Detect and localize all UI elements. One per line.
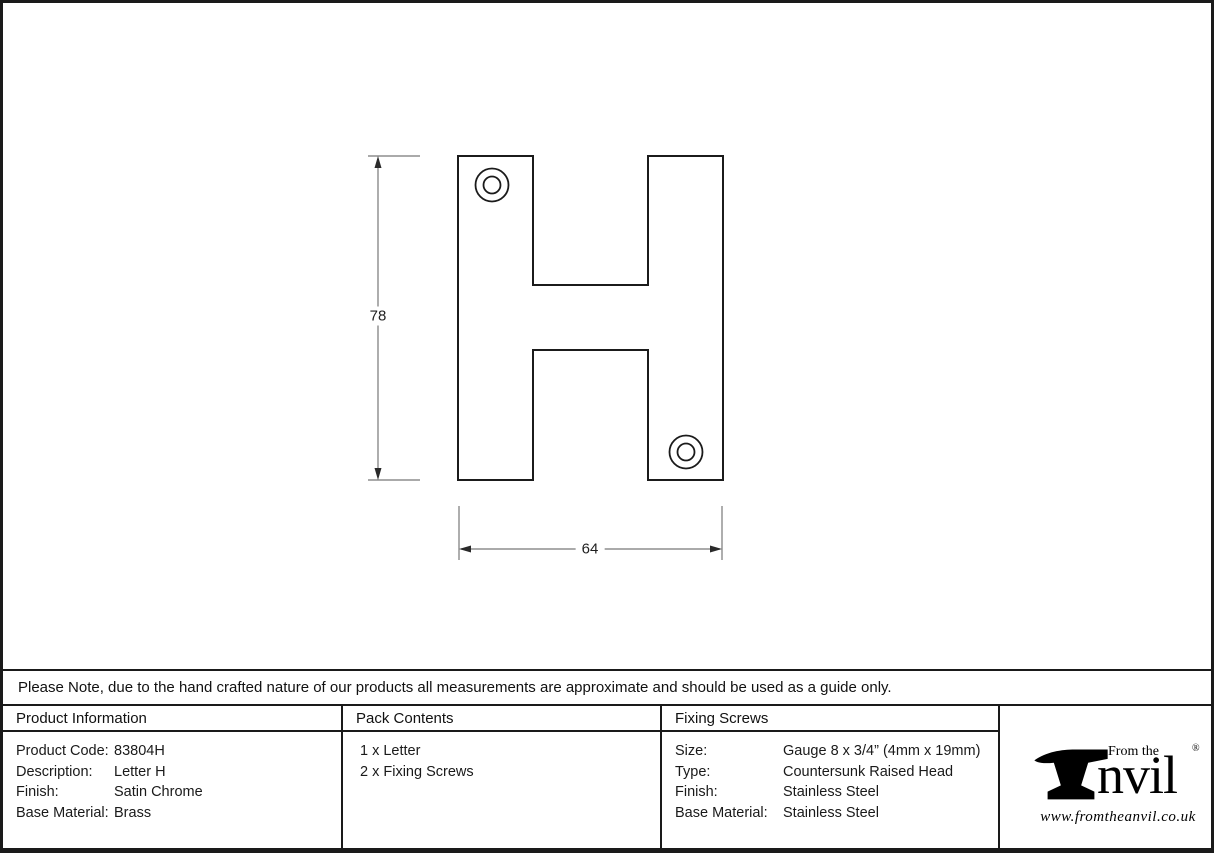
from-the-anvil-logo: From the nvil ® www.fromtheanvil.co.uk <box>1032 744 1204 832</box>
product-information-body: Product Code: 83804H Description: Letter… <box>3 732 341 848</box>
brand-logo-cell: From the nvil ® www.fromtheanvil.co.uk <box>1000 706 1211 848</box>
pack-item: 2 x Fixing Screws <box>360 762 660 783</box>
row-value: Countersunk Raised Head <box>783 762 953 783</box>
letter-h-drawing <box>3 3 1211 669</box>
screw-finish-row: Finish: Stainless Steel <box>675 782 998 803</box>
fixing-screws-header: Fixing Screws <box>662 706 998 732</box>
pack-item: 1 x Letter <box>360 741 660 762</box>
product-information-header: Product Information <box>3 706 341 732</box>
row-label: Finish: <box>16 782 114 803</box>
base-material-row: Base Material: Brass <box>16 803 341 824</box>
row-label: Base Material: <box>675 803 783 824</box>
row-value: Brass <box>114 803 151 824</box>
finish-row: Finish: Satin Chrome <box>16 782 341 803</box>
height-dimension-label: 78 <box>364 307 393 326</box>
row-value: Stainless Steel <box>783 803 879 824</box>
row-value: Letter H <box>114 762 166 783</box>
spec-sheet: 78 64 Please Note, due to the hand craft… <box>0 0 1214 853</box>
row-value: Gauge 8 x 3/4” (4mm x 19mm) <box>783 741 980 762</box>
row-label: Product Code: <box>16 741 114 762</box>
pack-contents-header: Pack Contents <box>343 706 660 732</box>
width-dimension-label: 64 <box>576 540 605 559</box>
size-row: Size: Gauge 8 x 3/4” (4mm x 19mm) <box>675 741 998 762</box>
row-label: Type: <box>675 762 783 783</box>
measurement-note-text: Please Note, due to the hand crafted nat… <box>18 679 892 696</box>
row-label: Size: <box>675 741 783 762</box>
product-information-section: Product Information Product Code: 83804H… <box>3 706 343 848</box>
technical-drawing-area: 78 64 <box>3 3 1211 669</box>
pack-contents-body: 1 x Letter 2 x Fixing Screws <box>343 732 660 848</box>
measurement-note: Please Note, due to the hand crafted nat… <box>3 669 1211 704</box>
description-row: Description: Letter H <box>16 762 341 783</box>
logo-brand-text: nvil <box>1097 748 1177 802</box>
screw-base-material-row: Base Material: Stainless Steel <box>675 803 998 824</box>
pack-contents-section: Pack Contents 1 x Letter 2 x Fixing Scre… <box>343 706 662 848</box>
row-label: Base Material: <box>16 803 114 824</box>
logo-website-url: www.fromtheanvil.co.uk <box>1032 809 1204 826</box>
type-row: Type: Countersunk Raised Head <box>675 762 998 783</box>
row-label: Description: <box>16 762 114 783</box>
fixing-screws-section: Fixing Screws Size: Gauge 8 x 3/4” (4mm … <box>662 706 1000 848</box>
registered-trademark-icon: ® <box>1192 743 1200 754</box>
info-table: Product Information Product Code: 83804H… <box>3 704 1211 848</box>
row-value: Satin Chrome <box>114 782 203 803</box>
row-value: 83804H <box>114 741 165 762</box>
product-code-row: Product Code: 83804H <box>16 741 341 762</box>
row-value: Stainless Steel <box>783 782 879 803</box>
fixing-screws-body: Size: Gauge 8 x 3/4” (4mm x 19mm) Type: … <box>662 732 998 848</box>
row-label: Finish: <box>675 782 783 803</box>
letter-h-outline <box>458 156 723 480</box>
